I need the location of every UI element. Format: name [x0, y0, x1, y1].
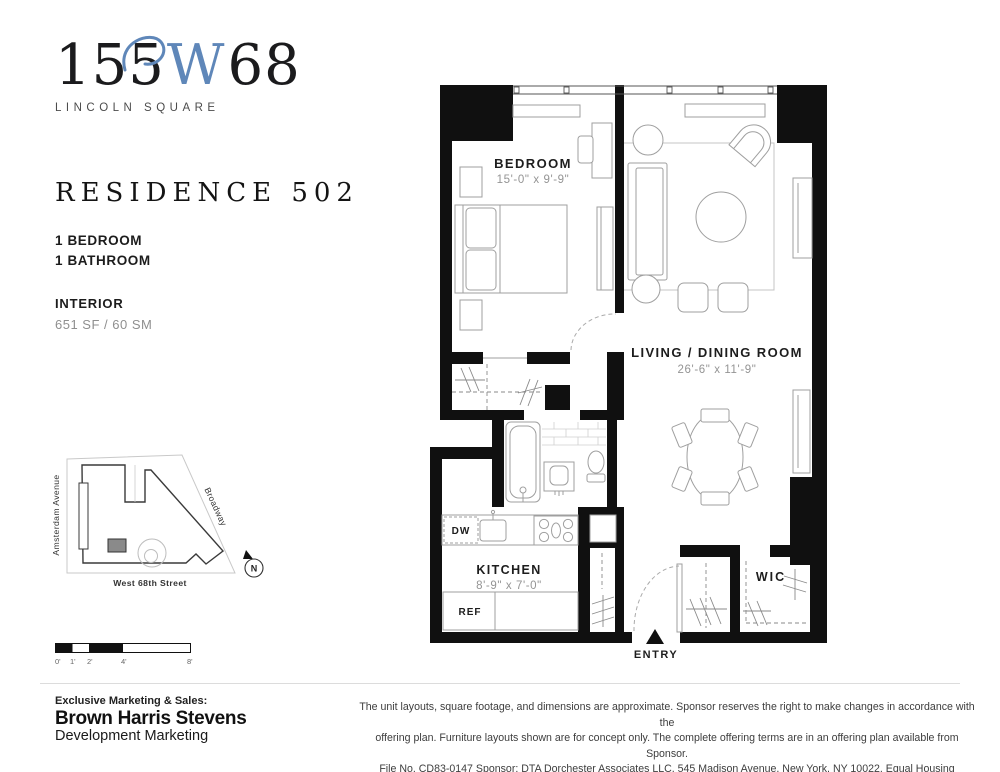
floor-plan: BEDROOM 15'-0" x 9'-9" LIVING / DINING R… [430, 83, 830, 663]
street-bottom-label: West 68th Street [113, 578, 187, 588]
desk-chair [578, 136, 593, 163]
dining-chair-l1 [671, 422, 692, 448]
building-footprint [82, 465, 223, 564]
bedroom-label: BEDROOM [494, 156, 572, 171]
scale-tick-4: 4' [121, 657, 127, 666]
window-band [513, 86, 777, 94]
bathroom-vanity [544, 462, 574, 496]
dining-chair-top [701, 409, 729, 422]
logo-tagline: LINCOLN SQUARE [55, 102, 285, 114]
nightstand-top [460, 167, 482, 197]
footer-divider [40, 683, 960, 684]
dining-chair-bottom [701, 492, 729, 505]
living-window-seat [685, 104, 765, 117]
barrel-chair [729, 118, 778, 167]
compass-n-label: N [251, 564, 258, 574]
scale-tick-2: 2' [87, 657, 93, 666]
scale-tick-0: 0' [55, 657, 61, 666]
living-label: LIVING / DINING ROOM [631, 345, 803, 360]
kitchen-label: KITCHEN [476, 563, 541, 577]
logo-w: W [165, 33, 228, 98]
coffee-table [696, 192, 746, 242]
toilet [587, 451, 605, 482]
compass-needle-icon [243, 550, 253, 559]
entry-label: ENTRY [634, 649, 678, 661]
ottoman-left [678, 283, 708, 312]
bedroom-door-swing [571, 314, 616, 350]
spec-bedrooms: 1 BEDROOM [55, 231, 151, 251]
site-map: Amsterdam Avenue Broadway West 68th Stre… [50, 443, 275, 608]
scale-seg-2-4 [89, 644, 123, 653]
scale-tick-1: 1' [70, 657, 76, 666]
wic-label: WIC [756, 570, 786, 584]
sales-label: Exclusive Marketing & Sales: [55, 695, 207, 707]
bedroom-window-seat [513, 105, 580, 117]
desk [592, 123, 612, 178]
scale-tick-8: 8' [187, 657, 193, 666]
side-table-bottom [632, 275, 660, 303]
dining-chair-r2 [737, 466, 758, 492]
scale-bar: 0' 1' 2' 4' 8' [55, 641, 215, 667]
kitchen-dims: 8'-9" x 7'-0" [476, 580, 542, 592]
ref-label: REF [459, 607, 482, 618]
dining-chair-r1 [737, 422, 758, 448]
logo-68: 68 [227, 33, 300, 98]
building-west-wing [79, 483, 88, 549]
disclaimer-line-2: offering plan. Furniture layouts shown a… [358, 731, 976, 762]
dining-table [687, 414, 743, 500]
brokerage-division: Development Marketing [55, 728, 208, 744]
logo-155: 155 [55, 33, 165, 98]
disclaimer-line-1: The unit layouts, square footage, and di… [358, 700, 976, 731]
spec-bathrooms: 1 BATHROOM [55, 251, 151, 271]
bathtub [506, 422, 540, 502]
tv-console [597, 207, 613, 290]
wall-unit-upper [793, 178, 812, 258]
entry-door-leaf [677, 564, 682, 632]
side-table-top [633, 125, 663, 155]
bathroom-tile [542, 422, 606, 445]
unit-location-marker [108, 539, 126, 552]
street-right-label: Broadway [202, 486, 229, 528]
dining-chair-l2 [671, 466, 692, 492]
compass: N [243, 550, 263, 577]
bedroom-dims: 15'-0" x 9'-9" [497, 174, 570, 186]
chase-box [590, 515, 616, 542]
interior-area: 651 SF / 60 SM [55, 317, 152, 332]
wall-unit-lower [793, 390, 810, 473]
floorplan-page: 155W68 LINCOLN SQUARE RESIDENCE 502 1 BE… [0, 0, 1000, 772]
dw-label: DW [452, 526, 471, 537]
street-left-label: Amsterdam Avenue [51, 474, 61, 555]
living-dims: 26'-6" x 11'-9" [678, 364, 757, 376]
interior-label: INTERIOR [55, 296, 124, 311]
bed [455, 205, 567, 293]
disclaimer-line-3: File No. CD83-0147 Sponsor: DTA Dorchest… [358, 762, 976, 772]
sofa [628, 163, 667, 280]
ottoman-right [718, 283, 748, 312]
scale-seg-0-1 [56, 644, 73, 653]
disclaimer: The unit layouts, square footage, and di… [358, 700, 976, 772]
entry-door-swing [634, 566, 679, 631]
logo-wordmark: 155W68 [55, 36, 285, 96]
residence-title: RESIDENCE 502 [55, 178, 359, 208]
brokerage-name: Brown Harris Stevens [55, 708, 246, 730]
nightstand-bottom [460, 300, 482, 330]
building-logo: 155W68 LINCOLN SQUARE [55, 36, 285, 114]
stove [534, 516, 578, 545]
entry-arrow-icon [646, 629, 664, 644]
residence-specs: 1 BEDROOM 1 BATHROOM [55, 231, 151, 271]
